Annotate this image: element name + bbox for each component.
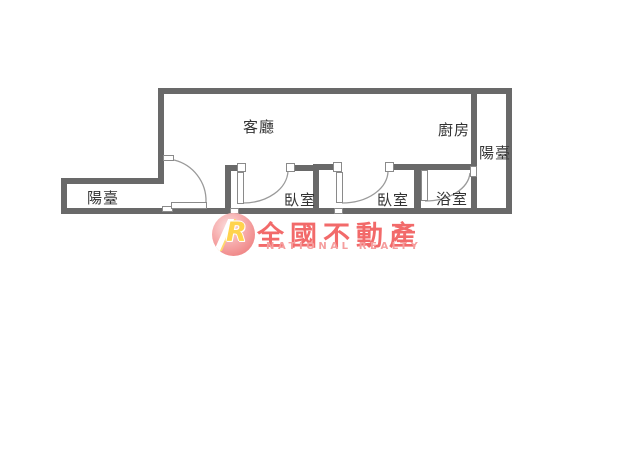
room-label-bedroom-1: 臥室	[284, 189, 316, 210]
wall-bathroom-partition	[414, 164, 421, 208]
brand-name-en: NATIONAL REALTY	[266, 241, 421, 252]
room-label-bedroom-2: 臥室	[377, 189, 409, 210]
room-label-balcony-right: 陽臺	[479, 142, 511, 163]
entry-door-jamb-top	[163, 155, 174, 161]
wall-kitchen-balcony-divider	[471, 94, 477, 208]
wall-bedroom1-left	[225, 165, 231, 208]
wall-bedroom2-top-left	[319, 164, 333, 170]
floor-plan-image: 客廳 廚房 陽臺 陽臺 臥室 臥室 浴室 R 全國不動產 NATIONAL RE…	[0, 0, 638, 460]
realty-logo-icon: R	[212, 213, 255, 256]
bedroom2-door-jamb-left	[333, 162, 342, 172]
bedroom1-door-jamb-left	[237, 163, 246, 172]
bedroom2-door-leaf	[336, 172, 343, 203]
room-label-balcony-left: 陽臺	[87, 187, 119, 208]
bathroom-door-leaf	[421, 170, 428, 201]
bedroom2-door-jamb-right	[385, 162, 394, 172]
wall-balcony-left-side	[61, 178, 67, 214]
bedroom1-door-leaf	[237, 172, 244, 204]
wall-bathroom-top	[421, 164, 471, 170]
wall-balcony-left-top	[61, 178, 164, 184]
entry-door-leaf	[171, 202, 207, 209]
bathroom-door-jamb	[470, 166, 477, 177]
entry-door-arc	[174, 160, 206, 202]
room-label-bathroom: 浴室	[436, 188, 468, 209]
room-label-living-room: 客廳	[243, 116, 275, 137]
wall-top	[158, 88, 512, 94]
wall-living-left	[158, 88, 164, 182]
bedroom1-door-jamb-right	[286, 163, 295, 172]
wall-bedroom1-top-right	[294, 165, 313, 171]
logo-monogram: R	[226, 217, 247, 248]
room-label-kitchen: 廚房	[438, 119, 470, 140]
wall-bedroom2-top-right	[394, 164, 414, 170]
bedroom1-door-arc	[243, 171, 288, 203]
